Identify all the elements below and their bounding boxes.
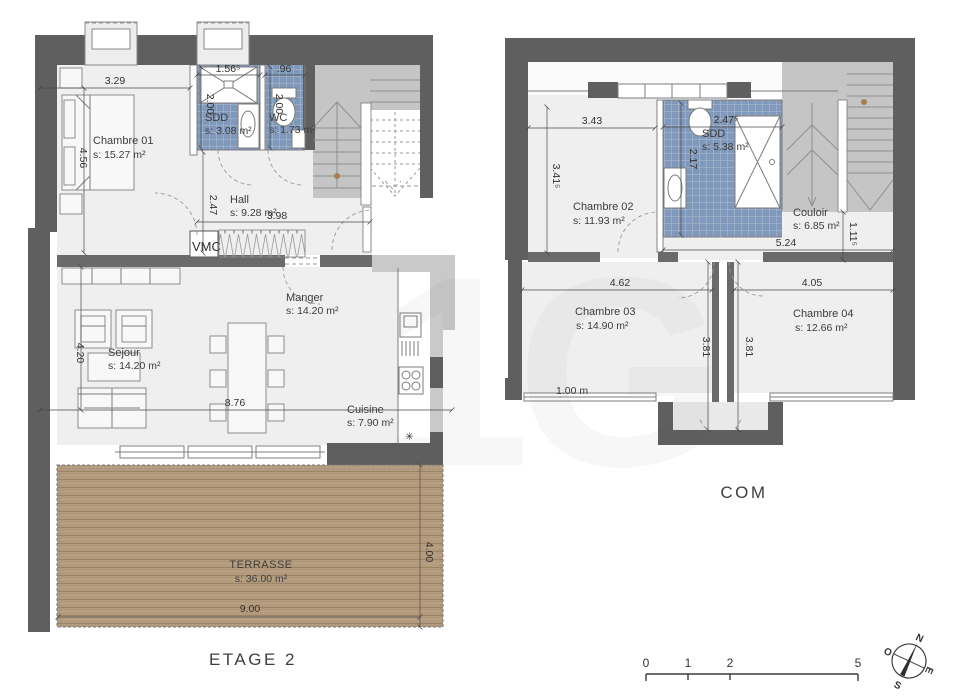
dim-2-00-wc: 2.00 (273, 94, 285, 115)
sideboard (62, 268, 180, 284)
floor-plan-canvas: ✳ VMC TERRAS (0, 0, 957, 699)
scale-2: 2 (727, 656, 734, 670)
chambre01-area: s: 15.27 m² (93, 149, 146, 161)
dim-5-24: 5.24 (776, 237, 797, 249)
closet-hatch (219, 230, 305, 257)
terrasse-name: TERRASSE (229, 559, 292, 571)
stair-newel-dot-com (861, 99, 867, 105)
hall-name: Hall (230, 194, 249, 206)
compass-e: E (922, 665, 935, 676)
scale-bar: 0 1 2 5 (643, 656, 862, 681)
dim-96: .96 (277, 63, 292, 75)
sdd-com-area: s: 5.38 m² (702, 141, 749, 153)
compass-n: N (914, 632, 925, 645)
dim-8-76: 8.76 (225, 397, 246, 409)
sdd-com-name: SDD (702, 128, 725, 140)
chambre04-area: s: 12.66 m² (795, 322, 848, 334)
dim-9-00: 9.00 (240, 603, 261, 615)
chambre02-name: Chambre 02 (573, 201, 634, 213)
dim-1-11: 1.11⁵ (847, 222, 859, 246)
sofa (78, 388, 146, 428)
stair-newel-dot (334, 173, 340, 179)
vmc-box: VMC (190, 230, 305, 257)
dim-3-81-b: 3.81 (743, 337, 755, 358)
entry-door-leaf (363, 207, 371, 252)
terrasse-area: s: 36.00 m² (235, 573, 288, 585)
armchair-2 (116, 310, 152, 348)
chambre01-name: Chambre 01 (93, 135, 154, 147)
scale-0: 0 (643, 656, 650, 670)
dim-2-47: 2.47 (207, 195, 219, 216)
sink-com (664, 168, 686, 208)
dim-3-98: 3.98 (267, 210, 288, 222)
shower-com (735, 116, 780, 208)
com-title: COM (720, 483, 767, 502)
manger-name: Manger (286, 292, 324, 304)
dim-1-56: 1.56⁵ (216, 63, 241, 75)
wc-area: s: 1.73 m² (269, 124, 316, 136)
dim-2-47-com: 2.47⁵ (714, 114, 739, 126)
couloir-area: s: 6.85 m² (793, 220, 840, 232)
manger-area: s: 14.20 m² (286, 305, 339, 317)
dormer-window-left (85, 22, 137, 65)
scale-5: 5 (855, 656, 862, 670)
dim-4-00: 4.00 (423, 542, 435, 563)
sejour-name: Sejour (108, 347, 140, 359)
dim-4-20: 4.20 (74, 343, 86, 364)
dim-2-00-sdd: 2.00 (204, 94, 216, 115)
floor-plan-page: ✳ VMC TERRAS (0, 0, 957, 699)
dim-4-56: 4.56 (77, 148, 89, 169)
couloir-name: Couloir (793, 207, 828, 219)
dim-3-43: 3.43 (582, 115, 603, 127)
dim-2-17: 2.17 (687, 149, 699, 170)
dining-table (210, 323, 284, 433)
sejour-area: s: 14.20 m² (108, 360, 161, 372)
chambre04-name: Chambre 04 (793, 308, 854, 320)
compass-s: S (892, 680, 903, 693)
etage2-title: ETAGE 2 (209, 650, 297, 669)
dormer-window-right (197, 22, 249, 65)
dim-3-41: 3.41⁵ (550, 164, 562, 189)
sdd-area: s: 3.08 m² (205, 125, 252, 137)
vmc-label: VMC (192, 239, 221, 254)
compass-icon: N S O E (871, 622, 946, 699)
watermark: 1G (380, 222, 712, 523)
dim-3-29: 3.29 (105, 75, 126, 87)
dim-4-05: 4.05 (802, 277, 823, 289)
scale-1: 1 (685, 656, 692, 670)
